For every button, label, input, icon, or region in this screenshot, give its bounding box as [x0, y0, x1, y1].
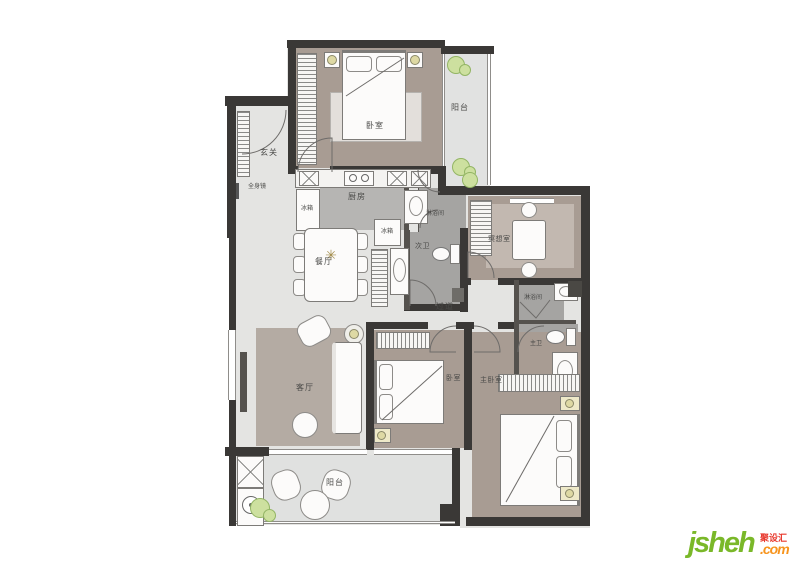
plant — [459, 64, 471, 76]
basin — [409, 196, 423, 216]
shelf — [452, 288, 464, 302]
wall — [438, 186, 590, 195]
label-bedroom-master: 主卧室 — [480, 377, 503, 384]
plant — [263, 509, 276, 522]
stool — [521, 262, 537, 278]
lamp — [377, 431, 386, 440]
cabinet-icon — [411, 171, 428, 186]
label-balcony-top: 阳台 — [451, 104, 469, 112]
wall — [441, 46, 494, 54]
balcony-rail — [487, 54, 491, 185]
floorplan-canvas: ✳ — [0, 0, 800, 565]
pillow — [346, 56, 372, 72]
storage-cabinet — [237, 456, 264, 488]
outside-patch — [220, 30, 287, 96]
lamp — [565, 399, 574, 408]
full-length-mirror — [236, 183, 239, 199]
living-window — [228, 330, 236, 400]
wall — [456, 322, 474, 329]
label-balcony-bottom: 阳台 — [326, 479, 344, 487]
label-bedroom-top: 卧室 — [366, 122, 384, 130]
plant — [462, 172, 478, 188]
toilet-tank — [450, 244, 460, 264]
wall — [466, 517, 590, 526]
toilet-bowl — [546, 330, 565, 344]
stool — [521, 202, 537, 218]
wall — [229, 456, 236, 526]
label-dining: 餐厅 — [315, 258, 333, 266]
lamp — [565, 489, 574, 498]
site-logo[interactable]: jsheh 聚设汇 .com — [688, 527, 798, 563]
wall — [452, 448, 460, 510]
label-living: 客厅 — [296, 384, 314, 392]
tall-cabinet — [371, 249, 388, 307]
toilet-tank — [566, 328, 576, 346]
wardrobe — [297, 53, 317, 165]
wall — [366, 328, 374, 450]
label-shower-b: 淋浴间 — [524, 295, 542, 301]
label-kitchen: 厨房 — [348, 193, 366, 201]
label-shower-a: 淋浴间 — [426, 211, 444, 217]
coffee-table — [292, 412, 318, 438]
wall — [227, 96, 236, 238]
pillow — [379, 394, 393, 420]
burner — [349, 174, 357, 182]
label-fridge-b: 冰箱 — [381, 229, 393, 235]
sink-icon — [299, 171, 319, 186]
tv-unit — [240, 352, 247, 412]
label-meditation: 冥想室 — [488, 236, 511, 243]
wall — [288, 46, 296, 172]
sink-icon — [387, 171, 407, 186]
sofa — [332, 342, 362, 434]
basin — [393, 258, 406, 282]
pillow — [379, 364, 393, 390]
wall — [404, 304, 466, 311]
wardrobe — [376, 332, 430, 349]
living-balcony-slider — [269, 449, 367, 455]
wall — [366, 322, 428, 329]
toilet-bowl — [432, 247, 450, 261]
wardrobe — [470, 200, 492, 256]
label-bath-master: 主卫 — [530, 341, 542, 347]
pillow — [556, 420, 572, 452]
label-bedroom-second: 卧室 — [446, 375, 461, 382]
wardrobe — [498, 374, 580, 392]
logo-tld: .com — [760, 541, 789, 557]
label-bath-second: 次卫 — [415, 243, 430, 250]
pillow — [556, 456, 572, 488]
burner — [361, 174, 369, 182]
wall — [581, 195, 590, 525]
bedroom-balcony-slider — [374, 449, 452, 455]
cabinet-dark — [568, 281, 582, 297]
wall — [498, 322, 514, 329]
label-mirror: 全身镜 — [248, 184, 266, 190]
wall — [287, 40, 445, 48]
table — [300, 490, 330, 520]
lamp — [327, 55, 337, 65]
lamp — [349, 329, 359, 339]
label-fridge-a: 冰箱 — [301, 206, 313, 212]
shoe-cabinet — [237, 111, 250, 177]
wall — [516, 320, 576, 324]
wall — [464, 328, 472, 450]
lamp — [410, 55, 420, 65]
wall — [225, 447, 269, 456]
label-corridor: 过道 — [436, 303, 454, 311]
bedroom-balcony-window — [442, 52, 445, 166]
label-entry: 玄关 — [260, 149, 278, 157]
logo-brand: jsheh — [688, 527, 754, 560]
wall — [461, 278, 471, 285]
pillow — [376, 56, 402, 72]
meditation-table — [512, 220, 546, 260]
